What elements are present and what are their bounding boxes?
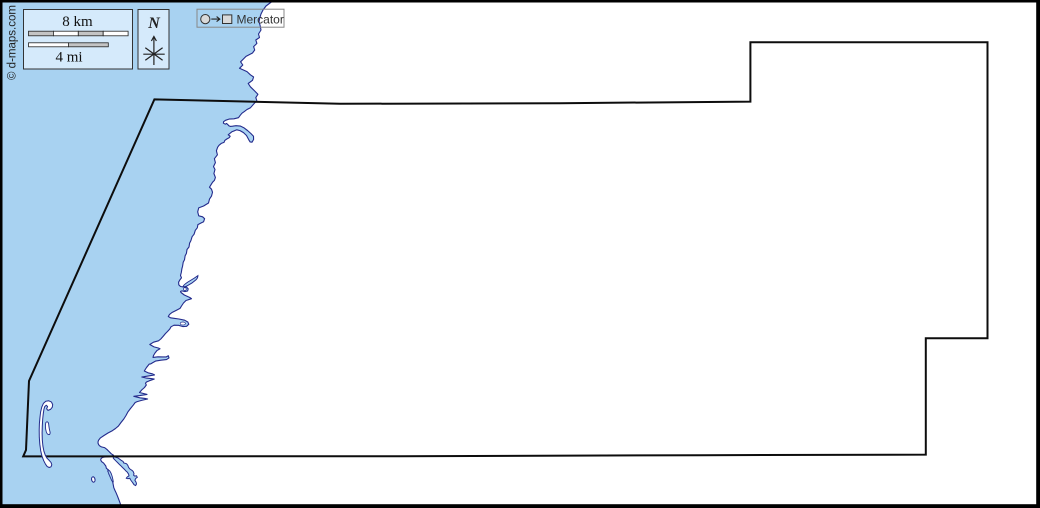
svg-text:N: N <box>147 15 161 32</box>
svg-text:© d-maps.com: © d-maps.com <box>7 5 19 80</box>
svg-text:Mercator: Mercator <box>237 13 284 27</box>
svg-text:4 mi: 4 mi <box>55 50 82 66</box>
svg-text:8 km: 8 km <box>62 14 93 30</box>
